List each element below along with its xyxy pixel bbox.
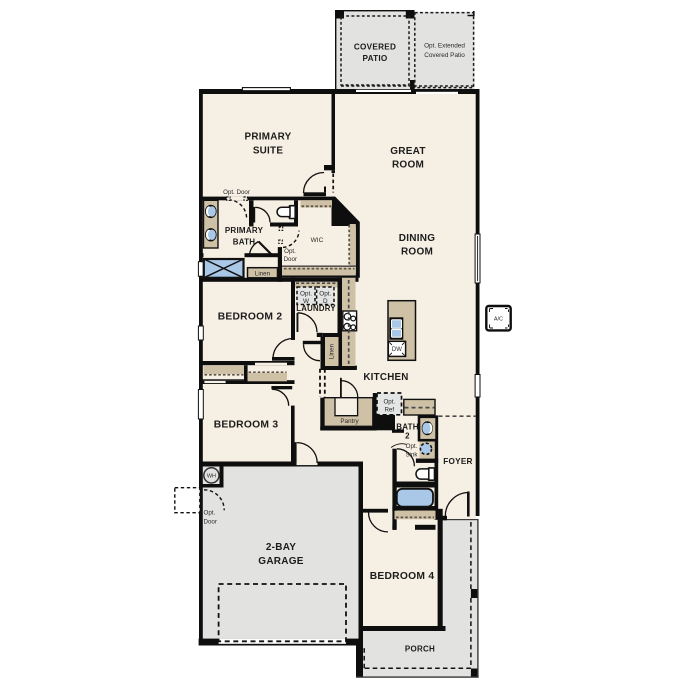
svg-text:2-BAY: 2-BAY [266, 542, 296, 553]
svg-text:LAUNDRY: LAUNDRY [296, 304, 336, 313]
svg-text:ROOM: ROOM [401, 247, 433, 258]
svg-text:Pantry: Pantry [340, 418, 359, 425]
svg-text:GARAGE: GARAGE [258, 556, 303, 567]
svg-text:BEDROOM 2: BEDROOM 2 [218, 312, 283, 323]
svg-text:A/C: A/C [494, 316, 503, 322]
svg-text:Opt.: Opt. [284, 248, 296, 255]
svg-text:Linen: Linen [255, 271, 271, 278]
svg-text:COVERED: COVERED [354, 42, 396, 51]
svg-text:GREAT: GREAT [390, 146, 426, 157]
svg-text:FOYER: FOYER [443, 457, 472, 466]
svg-text:WIC: WIC [311, 237, 324, 244]
svg-text:KITCHEN: KITCHEN [363, 372, 408, 383]
svg-text:BATH: BATH [233, 237, 256, 246]
svg-text:PRIMARY: PRIMARY [225, 226, 264, 235]
svg-text:WH: WH [207, 473, 216, 479]
svg-text:ROOM: ROOM [392, 160, 424, 171]
svg-text:2: 2 [405, 431, 410, 440]
svg-text:Sink: Sink [405, 452, 418, 459]
svg-text:Linen: Linen [328, 343, 335, 359]
svg-text:Door: Door [204, 519, 217, 526]
svg-text:BEDROOM 3: BEDROOM 3 [214, 420, 279, 431]
svg-text:Opt.: Opt. [204, 510, 216, 517]
svg-text:BATH: BATH [396, 422, 419, 431]
svg-text:PATIO: PATIO [362, 54, 387, 63]
svg-text:Covered Patio: Covered Patio [424, 52, 465, 59]
svg-text:Ref: Ref [384, 407, 394, 414]
svg-text:Opt.: Opt. [406, 443, 418, 450]
svg-text:PORCH: PORCH [405, 644, 435, 653]
svg-text:Opt.: Opt. [319, 291, 331, 298]
svg-text:Opt.: Opt. [383, 399, 395, 406]
svg-text:DINING: DINING [399, 233, 436, 244]
svg-text:PRIMARY: PRIMARY [245, 132, 292, 143]
svg-text:Opt. Door: Opt. Door [223, 189, 250, 196]
svg-text:SUITE: SUITE [253, 146, 283, 157]
svg-text:Door: Door [284, 256, 297, 263]
svg-text:DW: DW [392, 347, 402, 353]
svg-text:Opt. Extended: Opt. Extended [424, 42, 465, 49]
svg-text:BEDROOM 4: BEDROOM 4 [370, 571, 435, 582]
svg-text:Opt.: Opt. [300, 291, 312, 298]
